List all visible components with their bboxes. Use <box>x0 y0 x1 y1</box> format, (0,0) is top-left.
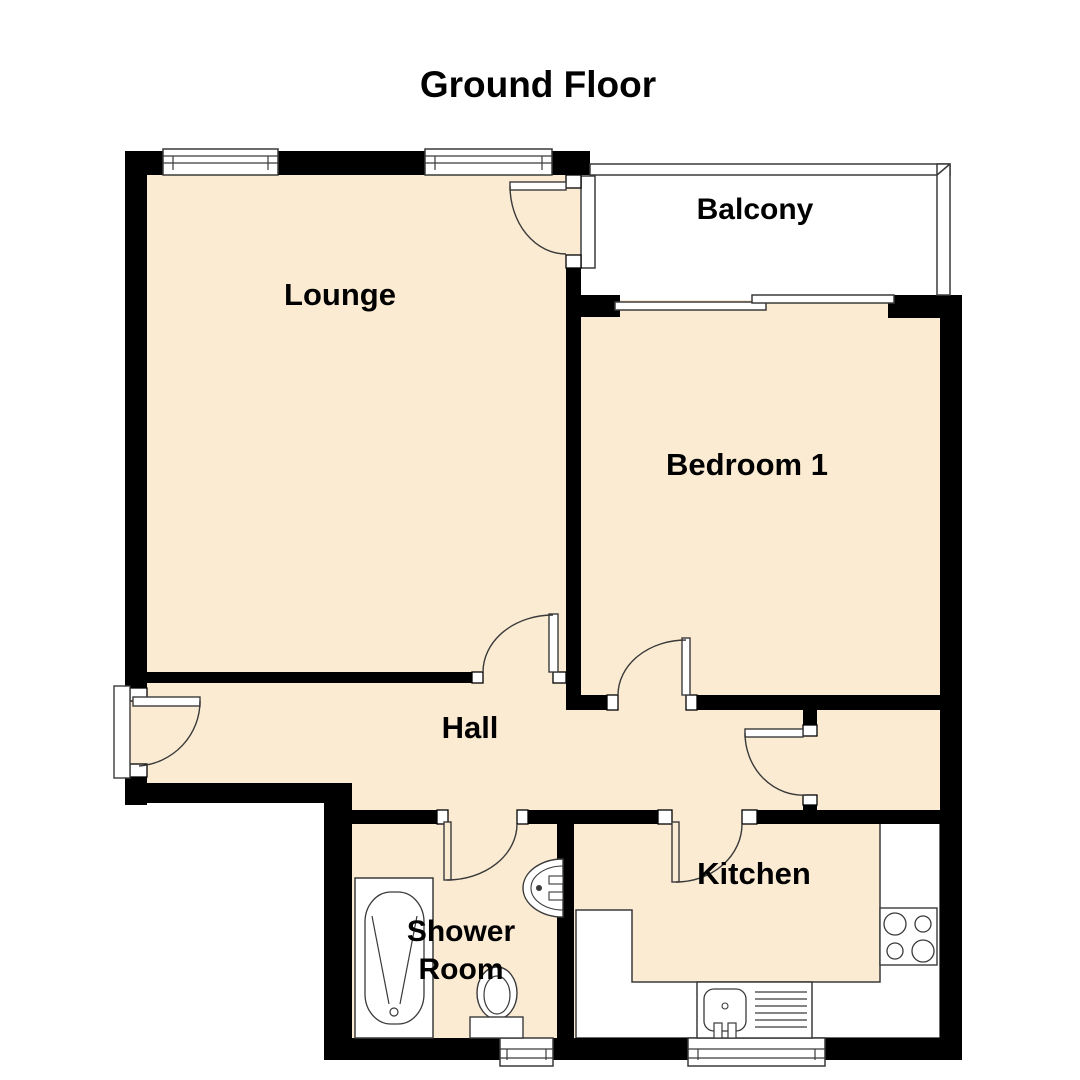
wall-lounge-bedroom-divider <box>566 268 581 710</box>
jamb-pocket-door-north <box>803 725 817 736</box>
sliding-panel-inner <box>615 302 766 310</box>
wall-hall-north-a <box>581 695 607 710</box>
wall-hall-north-b <box>697 695 940 710</box>
wall-lounge-south <box>145 672 472 683</box>
room-label-kitchen: Kitchen <box>697 856 811 891</box>
wall-stub-upper <box>803 710 817 725</box>
lounge-floor <box>135 160 580 690</box>
room-label-bedroom1: Bedroom 1 <box>666 447 828 482</box>
room-label-shower-line1: Shower <box>407 915 516 948</box>
floor-plan-drawing: Ground Floor Lounge Balcony Bedroom 1 Ha… <box>0 0 1080 1080</box>
jamb-bedroom-door-west <box>607 695 618 710</box>
jamb-bedroom-door-east <box>686 695 697 710</box>
window-lounge-1 <box>163 149 278 175</box>
room-label-shower-line2: Room <box>419 953 504 986</box>
balcony-door-side-panel <box>581 176 595 268</box>
wall-bedroom-top-right <box>888 295 962 318</box>
floor-fills <box>128 160 950 1046</box>
balcony-wall-east <box>937 164 950 295</box>
wall-shower-west <box>324 803 352 1060</box>
wall-kitchen-north-east <box>757 810 962 824</box>
wall-south <box>324 1038 962 1060</box>
wall-west-upper <box>125 151 147 701</box>
wall-shower-kitchen-divider <box>557 822 574 1038</box>
jamb-lounge-door-west <box>472 672 483 683</box>
jamb-kitchen-door-east <box>742 810 757 824</box>
window-kitchen <box>688 1038 825 1066</box>
sliding-panel-outer <box>752 295 894 303</box>
jamb-balcony-door-south <box>566 255 581 268</box>
hall-floor-east-pocket <box>808 700 948 818</box>
wall-shower-north-b <box>528 810 658 824</box>
bedroom-floor <box>578 300 950 712</box>
wall-shower-north-a <box>352 810 437 824</box>
wall-hall-southwest <box>125 783 352 803</box>
room-label-hall: Hall <box>442 710 499 745</box>
jamb-shower-door-east <box>517 810 528 824</box>
kitchen-sink-symbol <box>697 982 812 1038</box>
window-shower-room <box>500 1038 553 1066</box>
room-label-balcony: Balcony <box>697 193 814 226</box>
page-title: Ground Floor <box>420 64 656 105</box>
room-label-lounge: Lounge <box>284 277 396 312</box>
balcony-wall-north <box>590 164 950 175</box>
jamb-pocket-door-south <box>803 795 817 805</box>
jamb-kitchen-door-west <box>658 810 672 824</box>
floor-plan-page: Ground Floor Lounge Balcony Bedroom 1 Ha… <box>0 0 1080 1080</box>
hob-symbol <box>880 908 937 965</box>
jamb-lounge-door-east <box>553 672 566 683</box>
wall-east <box>940 295 962 1060</box>
window-lounge-2 <box>425 149 552 175</box>
balcony-walls <box>581 164 950 295</box>
jamb-balcony-door-north <box>566 175 581 188</box>
